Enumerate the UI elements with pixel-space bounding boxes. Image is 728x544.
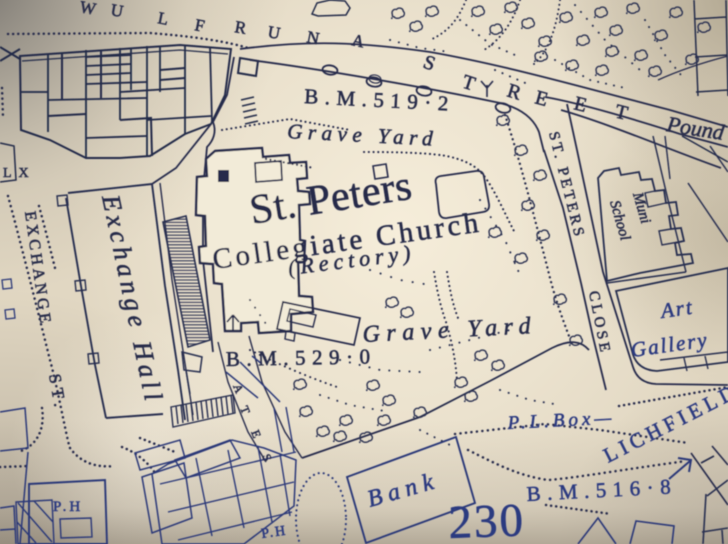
svg-text:230: 230 (448, 494, 526, 544)
svg-text:B.M.529·0: B.M.529·0 (226, 344, 377, 371)
svg-text:Art: Art (657, 295, 695, 324)
svg-text:P.H: P.H (53, 499, 83, 515)
svg-text:LX: LX (3, 166, 36, 181)
